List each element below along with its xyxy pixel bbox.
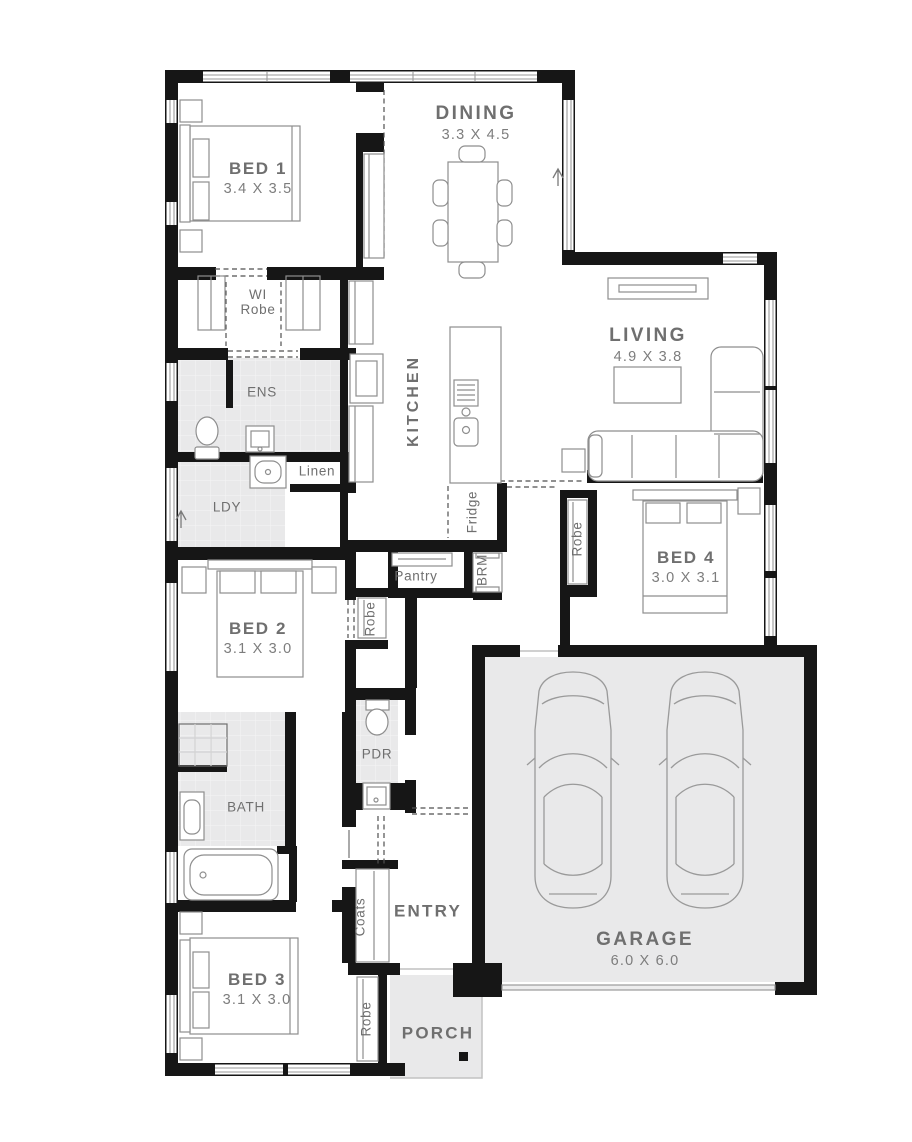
room-label-living: LIVING: [609, 325, 687, 347]
room-dining: DINING 3.3 X 4.5: [436, 103, 517, 143]
room-size-bed2: 3.1 X 3.0: [224, 641, 293, 657]
laundry-sink: [250, 456, 286, 488]
room-label-bed2: BED 2: [224, 619, 293, 639]
room-label-fridge: Fridge: [465, 491, 482, 533]
room-label-pantry: Pantry: [394, 569, 437, 586]
room-bed3: BED 3 3.1 X 3.0: [223, 970, 292, 1008]
room-bed1: BED 1 3.4 X 3.5: [224, 159, 293, 197]
room-label-robe-bed4: Robe: [570, 521, 587, 556]
room-bed4: BED 4 3.0 X 3.1: [652, 548, 721, 586]
dining-table: [433, 146, 512, 278]
room-label-linen: Linen: [299, 464, 336, 481]
room-label-ens: ENS: [247, 385, 277, 402]
room-size-dining: 3.3 X 4.5: [436, 127, 517, 143]
room-size-bed3: 3.1 X 3.0: [223, 992, 292, 1008]
room-label-bed4: BED 4: [652, 548, 721, 568]
room-size-living: 4.9 X 3.8: [609, 349, 687, 365]
room-label-brm: BRM: [475, 554, 492, 586]
room-label-porch: PORCH: [402, 1022, 474, 1043]
room-label-pdr: PDR: [362, 747, 393, 764]
room-label-bath: BATH: [227, 800, 265, 817]
room-label-bed1: BED 1: [224, 159, 293, 179]
room-label-garage: GARAGE: [596, 929, 694, 951]
living-furniture: [562, 278, 763, 481]
room-label-wi-robe-line2: Robe: [240, 302, 275, 317]
room-label-robe-bed2: Robe: [363, 601, 380, 636]
room-label-dining: DINING: [436, 103, 517, 125]
room-size-garage: 6.0 X 6.0: [596, 953, 694, 969]
room-size-bed1: 3.4 X 3.5: [224, 181, 293, 197]
porch-marker: [459, 1052, 468, 1061]
floor-plan-drawing: [0, 0, 912, 1142]
room-bed2: BED 2 3.1 X 3.0: [224, 619, 293, 657]
room-label-ldy: LDY: [213, 500, 241, 517]
room-garage: GARAGE 6.0 X 6.0: [596, 929, 694, 969]
floor-plan: BED 1 3.4 X 3.5 DINING 3.3 X 4.5 WI Robe…: [0, 0, 912, 1142]
room-label-bed3: BED 3: [223, 970, 292, 990]
room-label-wi-robe-line1: WI: [240, 287, 275, 302]
room-label-robe-bed3: Robe: [359, 1001, 376, 1036]
room-label-kitchen: KITCHEN: [404, 355, 424, 447]
room-size-bed4: 3.0 X 3.1: [652, 570, 721, 586]
room-living: LIVING 4.9 X 3.8: [609, 325, 687, 365]
room-label-coats: Coats: [353, 898, 370, 937]
kitchen-cabinetry: [349, 154, 384, 482]
room-wi-robe: WI Robe: [240, 287, 275, 317]
kitchen-island: [450, 327, 501, 483]
room-label-entry: ENTRY: [394, 900, 462, 921]
